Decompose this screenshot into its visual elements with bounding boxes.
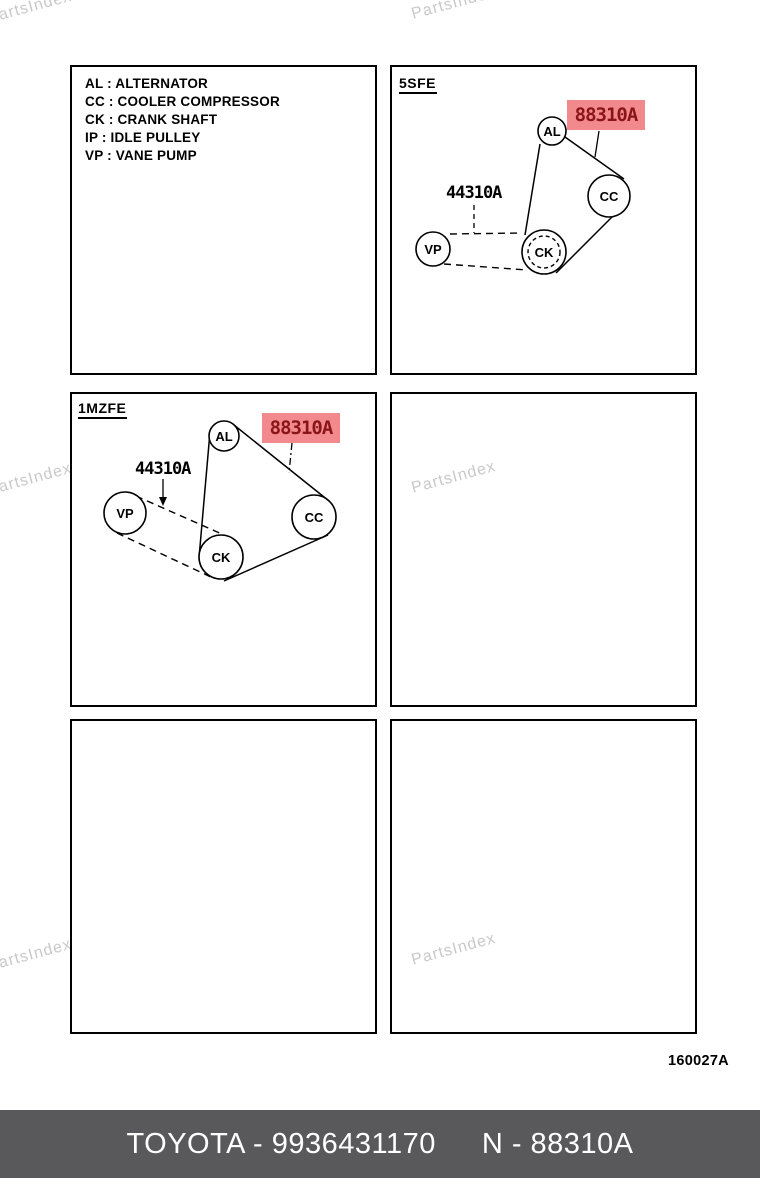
footer-reference: N - 88310A [482,1128,634,1161]
leader-88310a [289,443,292,473]
pulley-al-label: AL [215,429,232,444]
legend-item: CK : CRANK SHAFT [85,111,375,129]
highlighted-part-88310a[interactable]: 88310A [567,100,645,130]
belt-line-vp-ck-top [450,233,522,234]
empty-panel [70,719,377,1034]
empty-panel [390,719,697,1034]
legend-item: AL : ALTERNATOR [85,75,375,93]
legend-item: IP : IDLE PULLEY [85,129,375,147]
diagram-panel-1mzfe: AL CC CK VP 1MZFE 44310A 88310A [70,392,377,707]
empty-panel [390,392,697,707]
highlighted-part-88310a[interactable]: 88310A [262,413,340,443]
watermark: PartsIndex [0,936,74,976]
pulley-vp-label: VP [424,242,442,257]
legend-list: AL : ALTERNATOR CC : COOLER COMPRESSOR C… [72,67,375,165]
pulley-ck-label: CK [535,245,554,260]
belt-diagram-5sfe: AL CC CK VP [392,67,695,373]
pulley-cc-label: CC [600,189,619,204]
footer-part-number: TOYOTA - 9936431170 [126,1128,435,1161]
pulley-ck-label: CK [212,550,231,565]
leader-88310a [595,131,599,157]
belt-line-vp-ck-bottom [444,264,527,270]
parts-catalog-page: PartsIndex PartsIndex PartsIndex PartsIn… [0,0,760,1188]
watermark: PartsIndex [0,460,74,500]
belt-line-vp-ck-top [136,496,224,535]
diagram-panel-5sfe: AL CC CK VP 5SFE 44310A 88310A [390,65,697,375]
engine-label-1mzfe: 1MZFE [78,400,127,419]
legend-item: VP : VANE PUMP [85,147,375,165]
pulley-cc-label: CC [305,510,324,525]
watermark: PartsIndex [410,0,498,24]
watermark: PartsIndex [0,0,74,28]
legend-item: CC : COOLER COMPRESSOR [85,93,375,111]
pulley-vp-label: VP [116,506,134,521]
part-label-44310a: 44310A [135,459,190,479]
engine-label-5sfe: 5SFE [399,75,437,94]
belt-line-al-cc [565,137,624,179]
footer-bar: TOYOTA - 9936431170 N - 88310A [0,1110,760,1178]
part-label-44310a: 44310A [446,183,501,203]
belt-line-al-ck [525,144,540,235]
pulley-al-label: AL [543,124,560,139]
leader-44310a-arrowhead [159,497,167,506]
figure-code: 160027A [668,1053,729,1069]
legend-panel: AL : ALTERNATOR CC : COOLER COMPRESSOR C… [70,65,377,375]
